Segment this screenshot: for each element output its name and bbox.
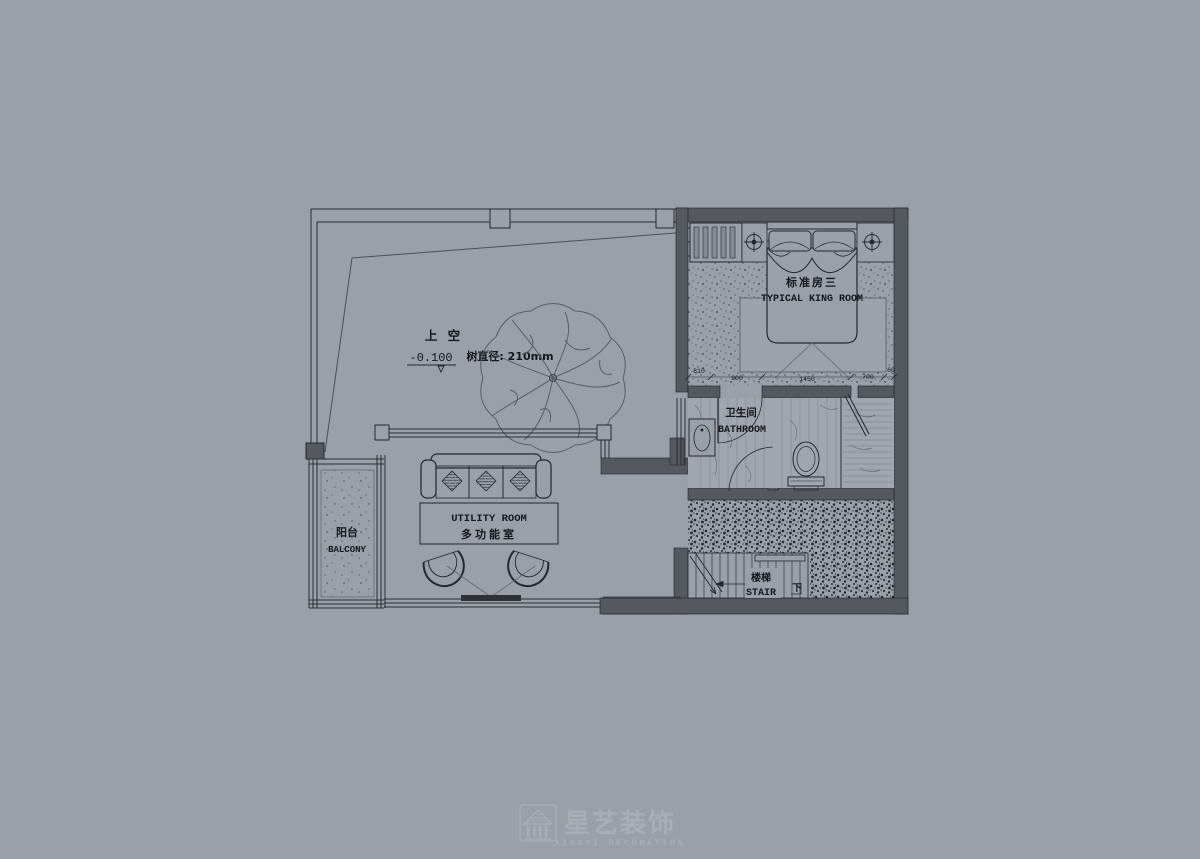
- nightstand: [857, 223, 894, 262]
- pillow: [769, 231, 811, 251]
- wardrobe: [690, 223, 742, 262]
- dim-value: 60: [887, 367, 895, 374]
- brand-name-en: XINGYI DECORATION: [555, 838, 686, 848]
- stair: 楼梯 STAIR 下: [688, 553, 808, 599]
- level-value: -0.100: [409, 351, 452, 365]
- column: [597, 425, 611, 440]
- dim-value: 900: [731, 375, 743, 382]
- dim-value: 810: [693, 368, 705, 375]
- void-label: 上 空: [425, 328, 463, 343]
- vanity-sink: [689, 419, 715, 456]
- bathroom-label-en: BATHROOM: [718, 425, 766, 436]
- king-room-label-cn: 标准房三: [785, 275, 838, 289]
- column: [375, 425, 389, 440]
- floor-plan-drawing: 上 空 -0.100 树直径: 210mm 阳台 BALCONY: [0, 0, 1200, 859]
- dim-value: 1450: [799, 376, 815, 383]
- tv: [461, 595, 521, 601]
- stair-landing: [755, 555, 805, 561]
- bathroom-label-cn: 卫生间: [725, 406, 757, 419]
- balcony-label-cn: 阳台: [336, 525, 358, 539]
- bathroom: 卫生间 BATHROOM: [688, 394, 894, 491]
- column: [490, 209, 510, 228]
- floor-plan-page: 上 空 -0.100 树直径: 210mm 阳台 BALCONY: [0, 0, 1200, 859]
- balcony-label-en: BALCONY: [328, 545, 366, 555]
- utility-label-en: UTILITY ROOM: [451, 513, 527, 525]
- column: [306, 443, 324, 459]
- dim-value: 700: [862, 374, 874, 381]
- king-room-label-en: TYPICAL KING ROOM: [761, 294, 863, 305]
- hall-floor: [688, 500, 894, 553]
- stair-label-cn: 楼梯: [751, 571, 771, 584]
- column: [656, 209, 674, 228]
- hall-floor: [810, 553, 894, 598]
- brand-name-cn: 星艺装饰: [564, 809, 676, 839]
- king-room: 标准房三 TYPICAL KING ROOM 810 900 1450 700 …: [685, 222, 897, 386]
- stair-label-en: STAIR: [746, 588, 776, 599]
- utility-label-cn: 多功能室: [461, 527, 517, 541]
- pillow: [813, 231, 855, 251]
